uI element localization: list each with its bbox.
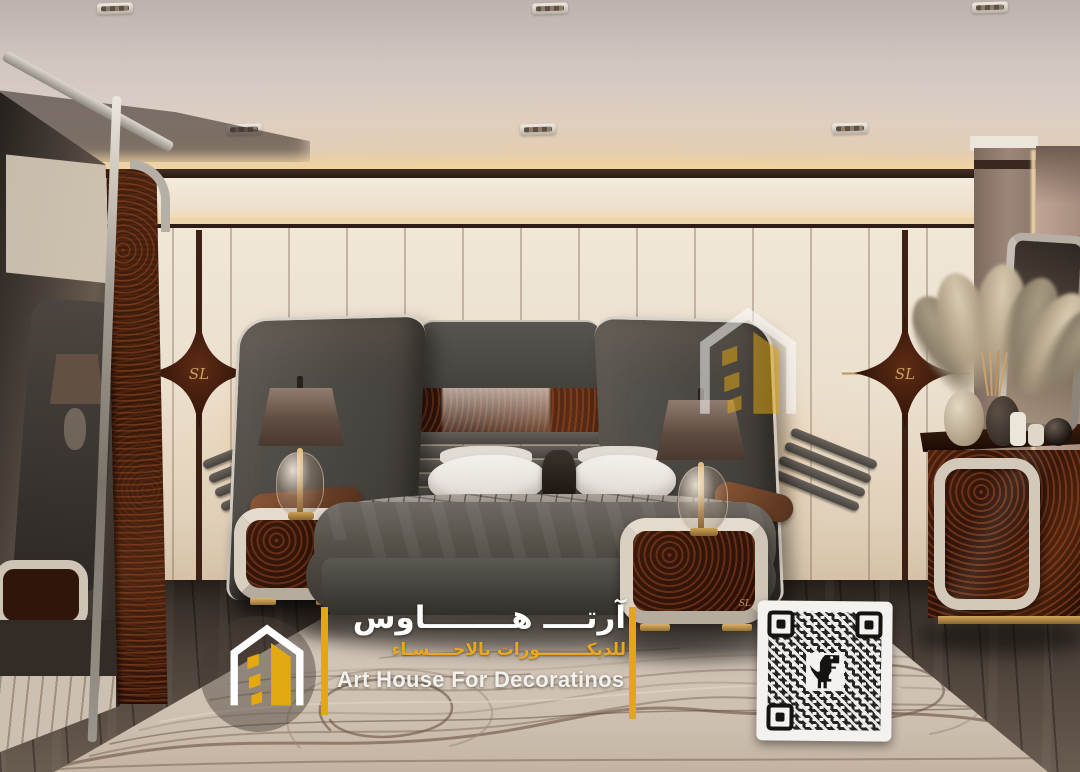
lamp-glass-base-right [678,466,728,532]
qr-finder [855,611,882,638]
monogram-left: SL [189,365,209,383]
diffuser-bottle [1010,412,1026,446]
small-jar [1028,424,1044,446]
right-wall-shade [1036,146,1080,204]
mirror-reflection-nightstand [0,560,88,630]
dresser-shadow [916,620,1080,654]
brand-text-block: آرتــــ هــــــــاوس للديكــــــــورات ب… [337,599,626,693]
mirror-reflection-wall [6,155,110,284]
lamp-shade-left [258,388,344,446]
qr-finder [767,610,794,637]
headboard-burl-highlight [442,386,550,434]
nightstand-foot [722,624,752,631]
mirror-reflection-lamp-base [64,408,86,450]
mirror-reflection-floor [0,620,120,682]
lamp-base-cap [690,528,718,536]
nightstand-foot [250,598,276,605]
ceiling-spotlight [832,122,868,134]
dresser-frame-ring [934,458,1040,610]
qr-code [756,600,892,741]
dino-icon [809,655,841,689]
pillar-trim [974,160,1036,169]
brand-arabic-title: آرتــــ هــــــــاوس [337,599,626,638]
qr-finder [766,703,793,730]
brand-divider-bar [629,607,636,719]
nightstand-foot [640,624,670,631]
mirror-reflection-lamp [50,354,104,404]
dino-eye [830,656,833,659]
art-house-logo-icon [226,620,308,712]
qr-center-badge [806,653,844,691]
lamp-finial [297,376,303,389]
ceiling-spotlight [97,2,133,14]
ceramic-vase [944,390,984,446]
brand-divider-bar [321,607,328,715]
lamp-base-cap [288,512,314,520]
bedroom-interior-render: SL SL [0,0,1080,772]
monogram-nightstand-right: SL [739,599,751,609]
ceiling-spotlight [520,123,556,135]
ceiling-spotlight [532,2,568,14]
brand-english-title: Art House For Decoratinos [337,667,626,693]
art-house-logo-watermark [694,306,802,418]
dresser-base-trim [938,616,1080,624]
brand-arabic-subtitle: للديكــــــــورات بالاحــــسـاء [337,640,626,660]
glass-sphere [1044,418,1072,446]
ceiling-spotlight [972,1,1008,13]
headboard-center-panel [420,320,600,388]
monogram-right: SL [895,365,915,383]
lamp-glass-base-left [276,452,324,516]
